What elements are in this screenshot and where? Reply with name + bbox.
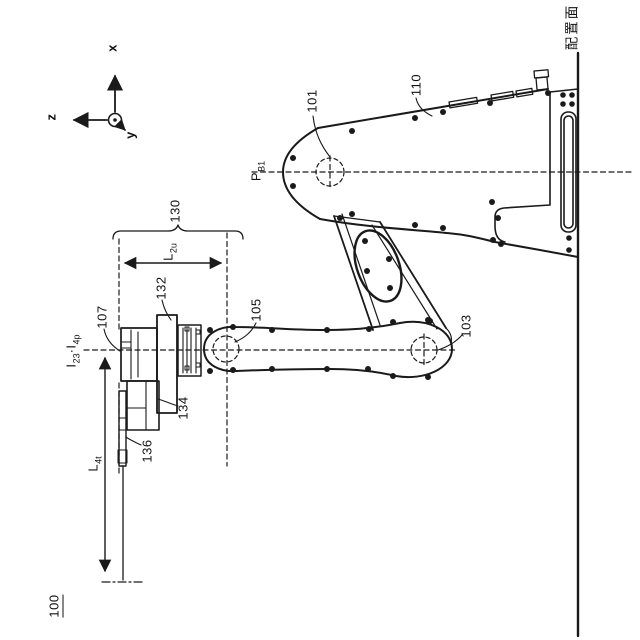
- y-axis-tick: [120, 125, 125, 130]
- brace-130: [113, 225, 243, 239]
- figure-number-text: 100: [47, 594, 64, 617]
- dim-l4t-label: L4t: [87, 456, 104, 471]
- label-134: 134: [177, 396, 190, 419]
- leader-107: [104, 329, 120, 351]
- coordinate-axes: [74, 76, 125, 130]
- label-103: 103: [460, 314, 473, 337]
- wrist-assembly: [118, 315, 201, 580]
- centerlines: [84, 156, 632, 582]
- y-axis-out-of-page-dot: [113, 118, 117, 122]
- wrist-plate-136-body: [119, 391, 126, 466]
- point-b1-label: PB1: [250, 161, 267, 181]
- figure-number-label: 100: [48, 594, 61, 617]
- bolt-dots: [207, 90, 575, 380]
- wrist-body-107: [121, 328, 157, 381]
- patent-figure-robot-side-view: x z y 配置面 101 110 103 105 107 130 132 13…: [0, 0, 640, 640]
- label-101: 101: [306, 89, 319, 112]
- y-axis-label: y: [124, 131, 137, 139]
- leader-132: [162, 300, 171, 320]
- z-axis-label: z: [45, 114, 58, 121]
- leader-110: [416, 98, 432, 116]
- label-107: 107: [96, 305, 109, 328]
- label-105: 105: [250, 298, 263, 321]
- x-axis-label: x: [106, 44, 119, 52]
- wrist-lower-134-body: [127, 381, 159, 430]
- label-136: 136: [141, 439, 154, 462]
- label-110: 110: [410, 74, 423, 96]
- first-link-110: [283, 70, 578, 257]
- mount-surface-label: 配置面: [565, 4, 579, 51]
- leader-101: [313, 116, 330, 157]
- label-130: 130: [169, 199, 182, 222]
- wrist-motor-132-body: [157, 315, 177, 413]
- axis-line-label: I23·I4p: [65, 334, 82, 367]
- robot-base: [495, 89, 578, 242]
- dim-l2u-label: L2u: [162, 243, 179, 261]
- label-132: 132: [155, 276, 168, 299]
- joint-105-circle: [213, 336, 239, 362]
- leader-105: [235, 323, 256, 342]
